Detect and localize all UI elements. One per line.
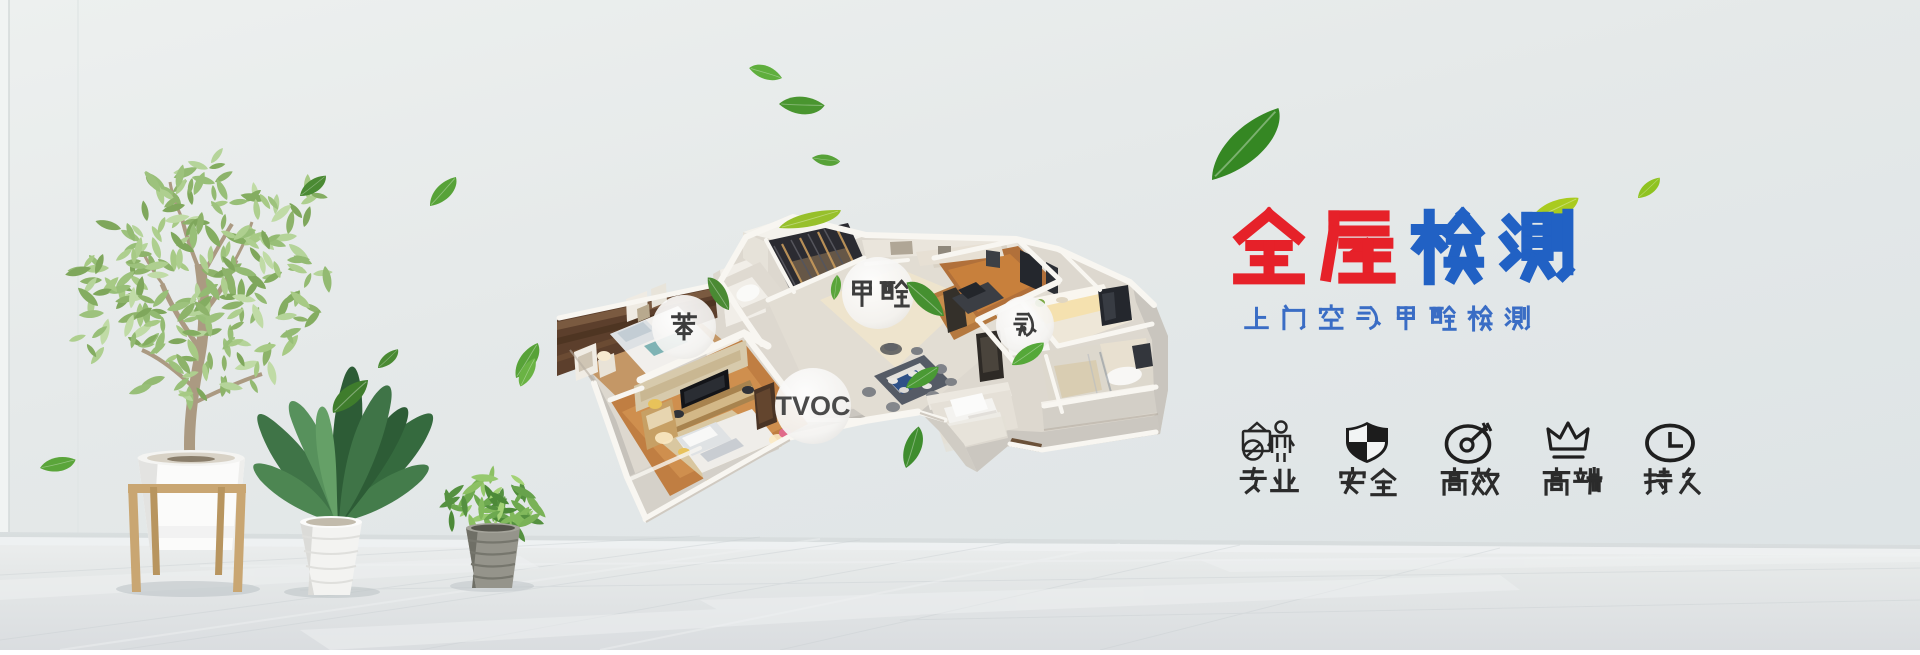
svg-text:TVOC: TVOC bbox=[775, 391, 850, 421]
